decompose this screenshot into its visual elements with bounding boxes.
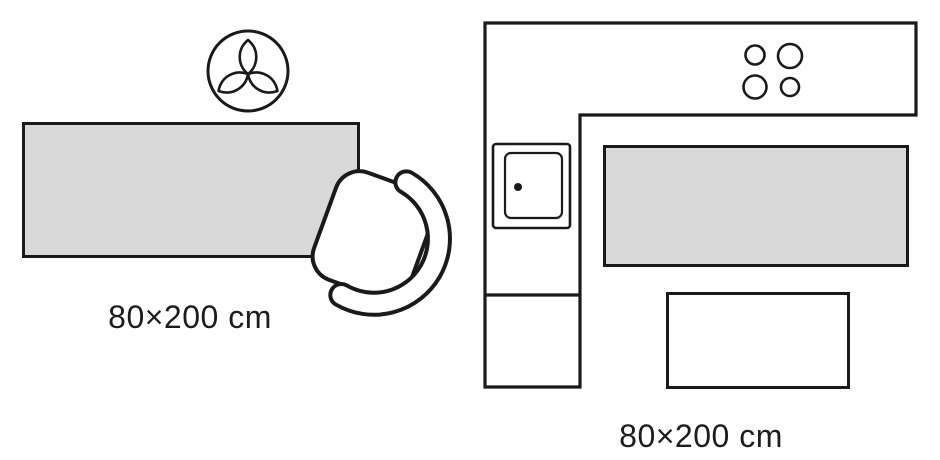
size-label-right: 80×200 cm [551,420,851,452]
stove-burners-icon [744,44,803,99]
runner-rug [603,145,909,267]
rug-size-diagram: 80×200 cm [0,0,940,460]
sink-icon [493,144,570,228]
right-scene: 80×200 cm [0,0,940,460]
table-outline [666,292,850,389]
